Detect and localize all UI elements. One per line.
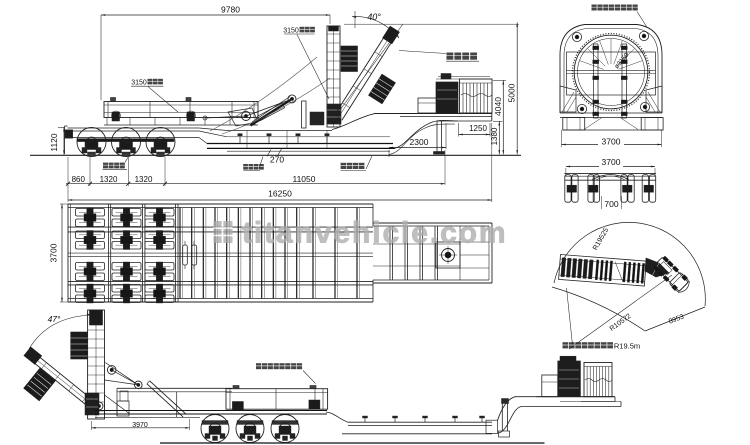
svg-text:270: 270 (270, 155, 284, 165)
svg-text:4040: 4040 (493, 97, 503, 116)
svg-text:5000: 5000 (507, 83, 517, 102)
svg-text:titanvehicle.com: titanvehicle.com (242, 217, 507, 250)
svg-text:40°: 40° (367, 12, 381, 22)
svg-text:3700: 3700 (49, 243, 59, 262)
svg-text:1320: 1320 (135, 175, 153, 184)
svg-text:R19.5m: R19.5m (614, 341, 640, 350)
svg-text:700: 700 (604, 199, 618, 209)
svg-text:1120: 1120 (49, 133, 59, 152)
svg-text:3700: 3700 (602, 157, 621, 167)
svg-text:16250: 16250 (268, 189, 292, 199)
svg-text:3150: 3150 (131, 80, 147, 87)
svg-text:9780: 9780 (221, 5, 240, 15)
svg-text:11050: 11050 (292, 174, 315, 184)
svg-text:1320: 1320 (100, 175, 118, 184)
svg-text:3970: 3970 (132, 422, 148, 429)
svg-text:1380: 1380 (490, 127, 499, 145)
svg-text:47°: 47° (48, 314, 61, 324)
svg-text:3700: 3700 (602, 137, 621, 147)
svg-text:860: 860 (72, 175, 86, 184)
svg-text:2300: 2300 (410, 137, 429, 147)
svg-text:3150: 3150 (283, 28, 299, 35)
svg-text:1250: 1250 (469, 124, 487, 133)
